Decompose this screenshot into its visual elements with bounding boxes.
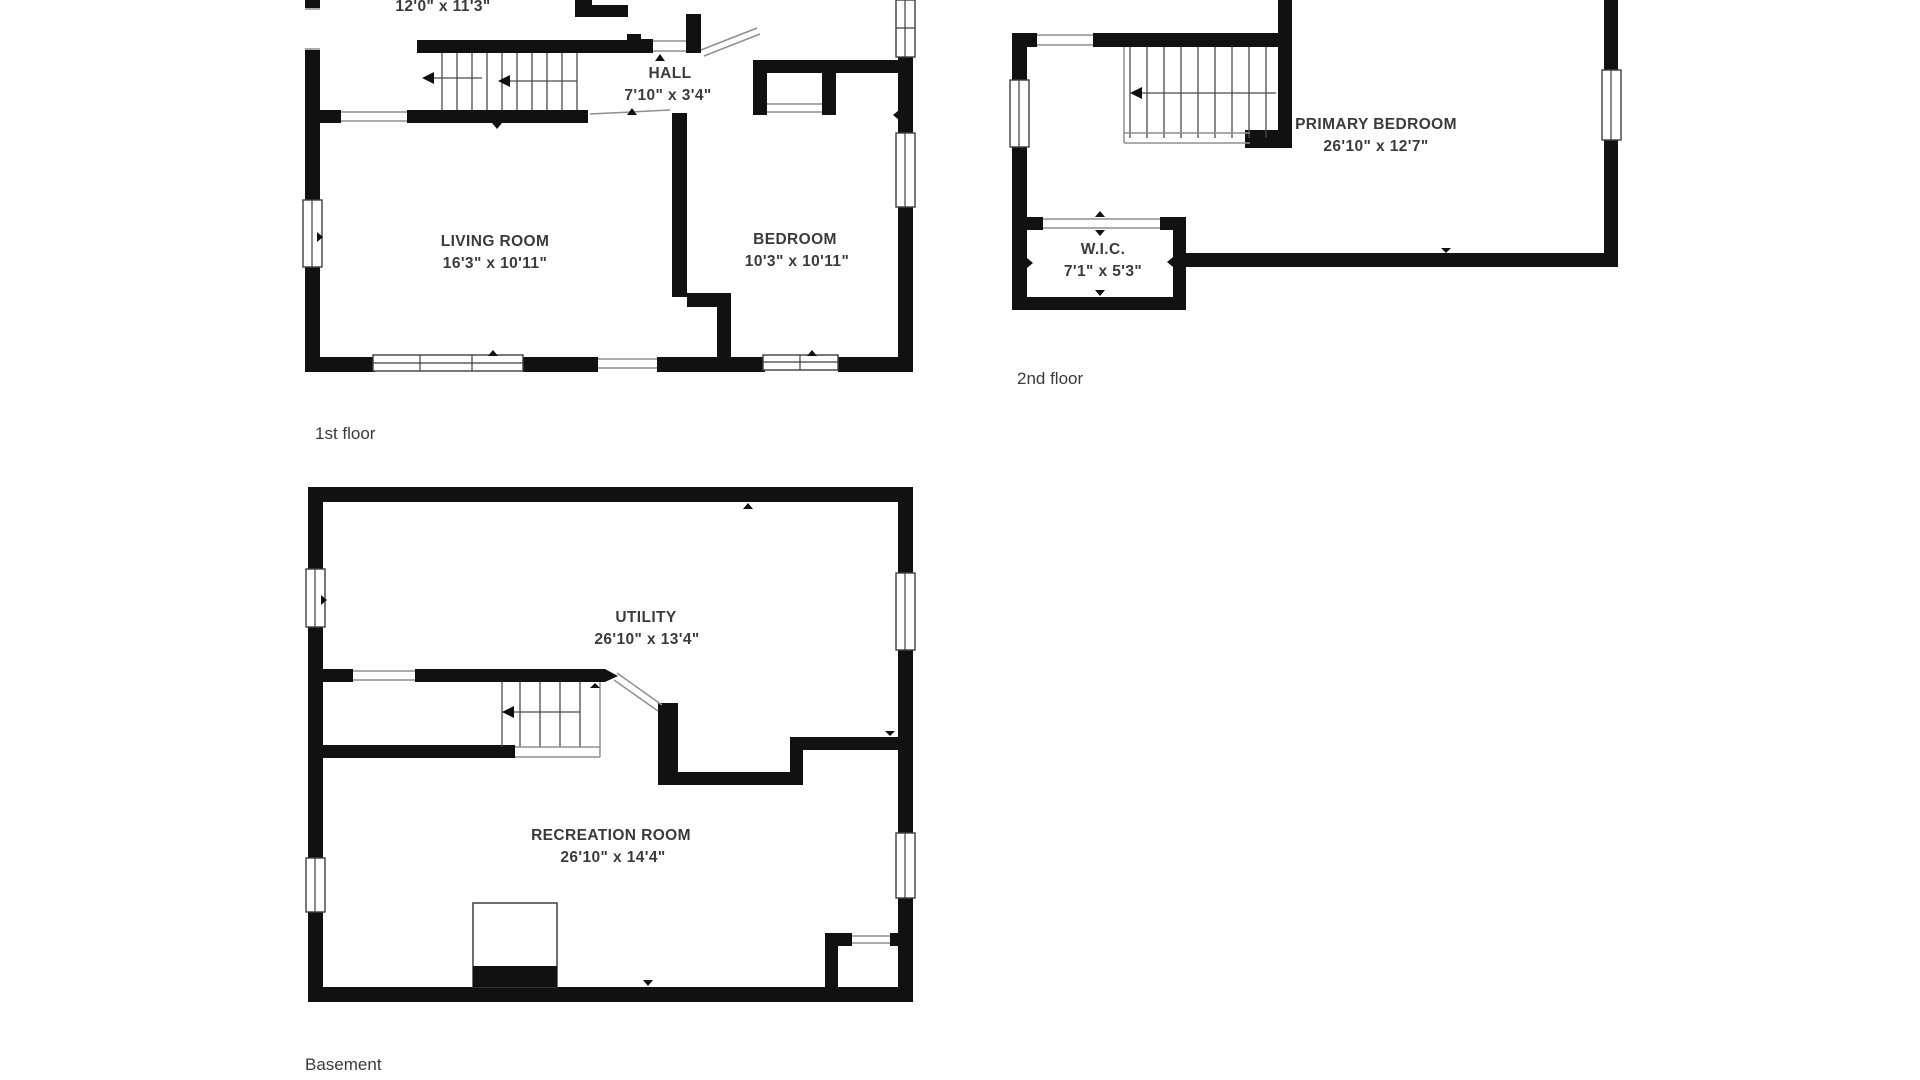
room-dims: 10'3" x 10'11": [745, 253, 849, 270]
room-name: RECREATION ROOM: [531, 827, 691, 844]
window: [896, 833, 915, 898]
window: [303, 200, 322, 267]
room-name: LIVING ROOM: [441, 233, 550, 250]
window: [896, 573, 915, 650]
room-name: BEDROOM: [753, 231, 837, 248]
floor-label-2nd: 2nd floor: [1017, 369, 1083, 389]
second-floor-stairs: [1124, 47, 1276, 143]
room-name: UTILITY: [615, 609, 677, 626]
room-dims: 26'10" x 13'4": [594, 631, 699, 648]
room-dims: 16'3" x 10'11": [443, 255, 547, 272]
second-floor-plan: PRIMARY BEDROOM 26'10" x 12'7" W.I.C. 7'…: [1000, 0, 1640, 330]
first-floor-ticks: [317, 54, 899, 356]
basement-walls: [308, 487, 913, 1002]
room-dims: 12'0" x 11'3": [395, 0, 490, 15]
first-floor-openings: [305, 9, 822, 368]
floor-label-basement: Basement: [305, 1055, 382, 1075]
first-floor-stairs: [422, 53, 577, 110]
room-dims: 7'10" x 3'4": [624, 87, 711, 104]
window: [763, 355, 838, 370]
basement-plan: UTILITY 26'10" x 13'4" RECREATION ROOM 2…: [300, 480, 920, 1020]
window: [1602, 70, 1621, 140]
window: [306, 858, 325, 912]
fireplace: [473, 903, 557, 987]
window: [896, 133, 915, 207]
basement-openings: [353, 671, 890, 943]
window: [1010, 80, 1029, 147]
stair-direction-arrow: [498, 75, 510, 87]
first-floor-plan: 12'0" x 11'3" HALL 7'10" x 3'4" LIVING R…: [295, 0, 925, 390]
second-floor-openings: [1037, 35, 1160, 228]
first-floor-walls: [305, 0, 913, 372]
room-dims: 26'10" x 12'7": [1323, 138, 1428, 155]
room-dims: 7'1" x 5'3": [1064, 263, 1142, 280]
room-name: PRIMARY BEDROOM: [1295, 116, 1457, 133]
stair-direction-arrow: [1130, 87, 1142, 99]
window: [373, 355, 523, 371]
second-floor-windows: [1010, 70, 1621, 147]
basement-stairs: [502, 682, 600, 757]
room-name: W.I.C.: [1081, 241, 1126, 258]
floor-plan-sheet: 12'0" x 11'3" HALL 7'10" x 3'4" LIVING R…: [0, 0, 1920, 1080]
stair-direction-arrow: [422, 72, 434, 84]
floor-label-1st: 1st floor: [315, 424, 375, 444]
room-name: HALL: [649, 65, 692, 82]
stair-direction-arrow: [502, 706, 514, 718]
window: [896, 0, 915, 57]
first-floor-windows: [303, 0, 915, 371]
room-dims: 26'10" x 14'4": [560, 849, 665, 866]
